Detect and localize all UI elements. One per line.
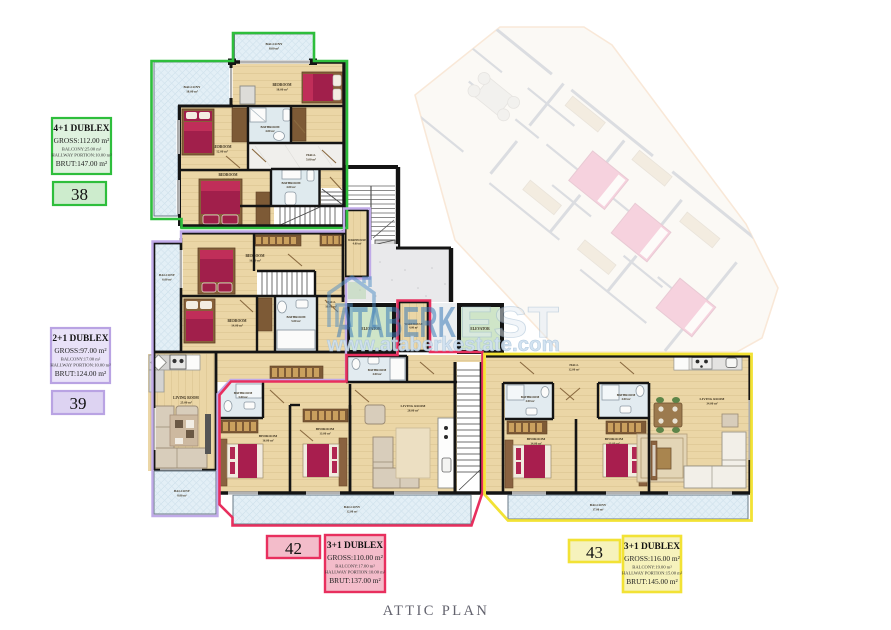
svg-text:BEDROOM: BEDROOM [219,173,239,177]
svg-text:4.00 m²: 4.00 m² [286,185,295,189]
svg-text:HALLWAY PORTION:10.00 m²: HALLWAY PORTION:10.00 m² [325,570,386,575]
svg-text:8.00 m²: 8.00 m² [177,493,186,497]
svg-text:43: 43 [586,543,603,562]
svg-text:HALLWAY PORTION:15.00 m²: HALLWAY PORTION:15.00 m² [622,571,683,576]
svg-text:BALCONY: BALCONY [184,85,202,89]
svg-text:3+1 DUBLEX: 3+1 DUBLEX [624,542,680,552]
svg-text:HALLWAY PORTION:10.00 m²: HALLWAY PORTION:10.00 m² [50,363,111,368]
svg-text:GROSS:116.00 m²: GROSS:116.00 m² [624,554,681,563]
svg-text:16.00 m²: 16.00 m² [262,438,273,442]
svg-text:LIVING ROOM: LIVING ROOM [401,404,427,408]
svg-text:BEDROOM: BEDROOM [605,437,624,441]
svg-text:BALCONY: BALCONY [174,489,191,493]
svg-text:14.00 m²: 14.00 m² [231,324,243,328]
svg-text:GROSS:110.00 m²: GROSS:110.00 m² [327,553,384,562]
svg-text:25.00 m²: 25.00 m² [180,401,192,405]
svg-text:39: 39 [70,394,87,413]
svg-text:BEDROOM: BEDROOM [527,437,546,441]
svg-text:BALCONY:19.00 m²: BALCONY:19.00 m² [632,565,672,570]
svg-text:BALCONY:17.00 m²: BALCONY:17.00 m² [61,357,101,362]
svg-text:4.00 m²: 4.00 m² [353,243,362,246]
svg-text:LIVING ROOM: LIVING ROOM [173,396,199,400]
svg-text:HALL: HALL [306,153,316,157]
svg-text:LIVING ROOM: LIVING ROOM [700,397,726,401]
svg-text:GROSS:97.00 m²: GROSS:97.00 m² [54,346,107,355]
svg-text:4.00 m²: 4.00 m² [525,399,534,403]
svg-text:HALL: HALL [569,363,579,367]
svg-text:HALLWAY PORTION:10.00 m²: HALLWAY PORTION:10.00 m² [51,153,112,158]
svg-text:5.00 m²: 5.00 m² [291,319,300,323]
svg-text:BALCONY: BALCONY [159,273,176,277]
svg-text:42: 42 [285,539,302,558]
svg-text:8.00 m²: 8.00 m² [269,47,279,51]
svg-text:38: 38 [71,185,88,204]
svg-text:5.00 m²: 5.00 m² [238,395,247,399]
svg-text:3+1 DUBLEX: 3+1 DUBLEX [327,541,383,551]
svg-text:BALCONY:17.00 m²: BALCONY:17.00 m² [335,564,375,569]
svg-text:BEDROOM: BEDROOM [228,319,248,323]
svg-text:BALCONY: BALCONY [344,505,361,509]
svg-text:BEDROOM: BEDROOM [259,434,278,438]
svg-text:18.00 m²: 18.00 m² [276,88,288,92]
svg-text:2+1 DUBLEX: 2+1 DUBLEX [52,334,108,344]
svg-text:BEDROOM: BEDROOM [246,254,266,258]
svg-text:34.00 m²: 34.00 m² [706,401,717,405]
svg-text:BRUT:137.00 m²: BRUT:137.00 m² [329,576,381,585]
svg-text:BEDROOM: BEDROOM [273,83,293,87]
svg-text:BALCONY: BALCONY [590,503,607,507]
svg-text:4.00 m²: 4.00 m² [621,397,630,401]
svg-text:GROSS:112.00 m²: GROSS:112.00 m² [54,136,111,145]
svg-text:BALCONY: BALCONY [266,42,284,46]
svg-text:12.00 m²: 12.00 m² [216,150,228,154]
svg-text:4+1 DUBLEX: 4+1 DUBLEX [53,124,109,134]
svg-text:18.00 m²: 18.00 m² [186,90,198,94]
svg-text:13.00 m²: 13.00 m² [319,431,330,435]
svg-text:4.00 m²: 4.00 m² [372,372,381,376]
svg-text:BRUT:145.00 m²: BRUT:145.00 m² [626,577,678,586]
svg-text:6.00 m²: 6.00 m² [162,277,171,281]
svg-text:12.00 m²: 12.00 m² [347,509,358,513]
svg-text:17.00 m²: 17.00 m² [593,507,604,511]
svg-text:BEDROOM: BEDROOM [213,145,233,149]
svg-text:12.00 m²: 12.00 m² [569,367,580,371]
svg-text:5.00 m²: 5.00 m² [306,158,316,162]
svg-text:BALCONY:25.00 m²: BALCONY:25.00 m² [62,147,102,152]
svg-text:www.ataberkestate.com: www.ataberkestate.com [326,333,560,356]
svg-text:BRUT:124.00 m²: BRUT:124.00 m² [55,369,107,378]
svg-text:BEDROOM: BEDROOM [316,427,335,431]
svg-text:WAREHOUSE: WAREHOUSE [348,239,366,242]
svg-text:4.00 m²: 4.00 m² [265,129,274,133]
svg-text:BRUT:147.00 m²: BRUT:147.00 m² [56,159,108,168]
svg-text:28.00 m²: 28.00 m² [407,408,418,412]
svg-text:ATTIC PLAN: ATTIC PLAN [383,603,490,619]
